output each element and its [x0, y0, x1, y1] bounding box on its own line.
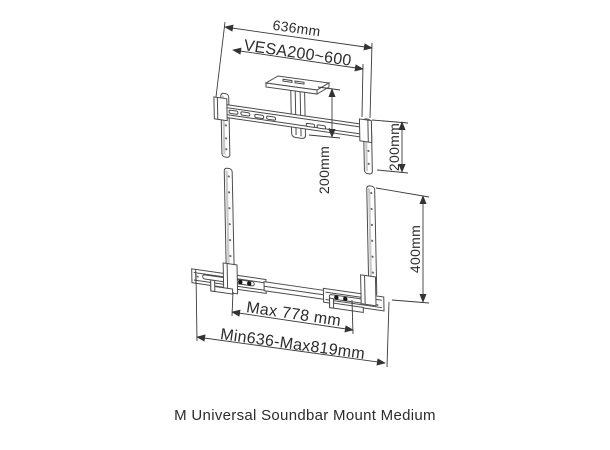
soundbar-mount-diagram: 636mm VESA200~600 200mm 200mm 400mm Max … [0, 0, 610, 450]
vesa-plate [266, 76, 329, 94]
dim-label-vesa: VESA200~600 [243, 37, 353, 70]
dim-label-column-200: 200mm [316, 146, 332, 194]
dim-label-right-400: 400mm [407, 225, 423, 273]
center-column [291, 88, 306, 139]
figure: 636mm VESA200~600 200mm 200mm 400mm Max … [0, 0, 610, 450]
figure-caption: M Universal Soundbar Mount Medium [174, 407, 436, 424]
dim-label-min-max: Min636-Max819mm [219, 326, 366, 363]
right-slider-block [361, 275, 376, 306]
dim-label-636: 636mm [272, 17, 322, 40]
dim-label-right-200: 200mm [386, 123, 402, 171]
dim-label-max-778: Max 778 mm [245, 299, 342, 330]
